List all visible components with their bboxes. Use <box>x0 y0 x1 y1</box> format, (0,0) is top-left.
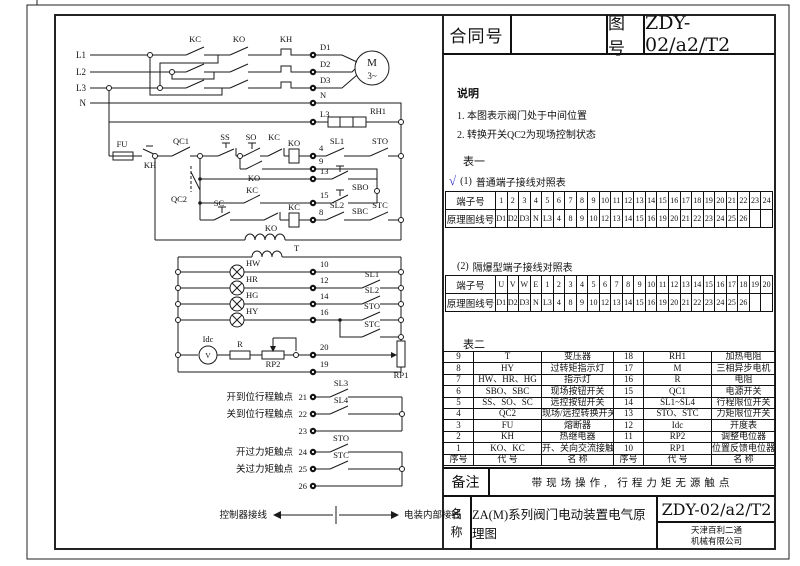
motor-phase-label: 3~ <box>367 71 377 81</box>
component-cell: 调整电位器 <box>712 431 776 442</box>
so-open-button <box>244 143 260 156</box>
terminal-cell: 15 <box>703 276 715 294</box>
sto-torque-contact <box>370 148 388 156</box>
term-20-label: 20 <box>320 342 329 352</box>
wire-cell: 25 <box>726 210 738 228</box>
term-4-label: 4 <box>319 143 324 153</box>
component-cell: QC2 <box>474 408 542 419</box>
terminal-cell: 23 <box>749 192 761 210</box>
row-header: 原理图线号 <box>446 210 496 228</box>
terminal-cell: 3 <box>565 276 577 294</box>
ss-stop-button <box>218 143 236 156</box>
component-row: 2KH热继电器11RP2调整电位器 <box>444 431 776 442</box>
wire-cell: 25 <box>726 294 738 312</box>
kc-interlock-contact <box>268 148 284 156</box>
wire-cell: 13 <box>611 294 623 312</box>
component-cell: 序号 <box>614 454 644 465</box>
caption-open-torque: 开过力矩触点 <box>236 446 294 458</box>
wire-cell: 26 <box>738 210 750 228</box>
drawing-page: L1 L2 L3 N KC KO KH D1 D2 D3 N L3 RH1 M … <box>0 0 800 566</box>
component-cell: 10 <box>614 443 644 454</box>
wire-cell: 16 <box>645 294 657 312</box>
wire-cell: 12 <box>599 210 611 228</box>
component-cell: 8 <box>444 363 474 374</box>
component-cell: 9 <box>444 352 474 363</box>
term-22-label: 22 <box>299 409 308 419</box>
terminal-cell: 24 <box>761 192 773 210</box>
component-row: 序号代 号名 称序号代 号名 称 <box>444 454 776 465</box>
kc-coil <box>289 213 299 227</box>
component-cell: SS、SO、SC <box>474 397 542 408</box>
wire-cell: 13 <box>611 210 623 228</box>
term-19-label: 19 <box>320 359 329 369</box>
fu-label: FU <box>117 139 128 149</box>
terminal-cell: 8 <box>622 276 634 294</box>
wire-cell: 16 <box>645 210 657 228</box>
term-25-label: 25 <box>299 464 308 474</box>
arrowheads <box>270 346 397 358</box>
term-12-label: 12 <box>320 275 329 285</box>
component-row: 6SBO、SBC现场按钮开关15QC1电源开关 <box>444 386 776 397</box>
sl4-label: SL4 <box>334 395 349 405</box>
component-cell: 序号 <box>444 454 474 465</box>
terminal-cell: 5 <box>542 192 554 210</box>
component-cell: HW、HR、HG <box>474 374 542 385</box>
sto-contact-label: STO <box>333 433 349 443</box>
wire-cell: 9 <box>576 294 588 312</box>
terminal-cell: 11 <box>657 276 669 294</box>
term-l3-label: L3 <box>320 109 329 119</box>
wire-cell: 21 <box>680 210 692 228</box>
sto-lamp-label: STO <box>364 301 380 311</box>
qc2-selector <box>191 156 200 220</box>
component-cell: 代 号 <box>474 454 542 465</box>
terminal-dots <box>310 52 316 489</box>
term-24-label: 24 <box>299 447 308 457</box>
resistor-r-label: R <box>237 339 243 349</box>
lamp-hw-label: HW <box>246 258 260 268</box>
sl1-limit-contact <box>326 148 344 156</box>
terminal-cell: 17 <box>680 192 692 210</box>
potentiometer-rp1 <box>397 341 405 367</box>
term-d1-label: D1 <box>320 42 330 52</box>
sto-label: STO <box>372 136 388 146</box>
kc-contacts <box>186 47 204 88</box>
sub2-title: 隔爆型端子接线对照表 <box>473 259 573 274</box>
dry-contact-group <box>316 389 402 486</box>
ko-coil-label: KO <box>288 138 300 148</box>
kc-coil-label: KC <box>288 202 300 212</box>
component-cell: 变压器 <box>542 352 614 363</box>
component-cell: RP2 <box>644 431 712 442</box>
ko-contactor-label: KO <box>233 34 245 44</box>
drawing-name: ZA(M)系列阀门电动装置电气原理图 <box>472 497 658 549</box>
stc-lamp-label: STC <box>364 319 380 329</box>
table1-sub1: √ (1) 普通端子接线对照表 <box>449 173 566 189</box>
component-cell: 远控按钮开关 <box>542 397 614 408</box>
row-header: 端子号 <box>446 192 496 210</box>
title-panel: 合同号 图号 ZDY-02/a2/T2 说明 1. 本图表示阀门处于中间位置 2… <box>443 15 775 549</box>
contract-no-label: 合同号 <box>443 15 512 53</box>
kc-hold-label: KC <box>246 185 258 195</box>
phase-n-label: N <box>80 98 87 108</box>
component-cell: 16 <box>614 374 644 385</box>
component-cell: 名 称 <box>542 454 614 465</box>
wire-number-row: 原理图线号 D1D2D3NL34891012131415161920212223… <box>446 210 773 228</box>
sub2-index: (2) <box>457 261 469 272</box>
kc-contactor-label: KC <box>189 34 201 44</box>
kc-interlock-label: KC <box>268 132 280 142</box>
terminal-cell: 6 <box>553 192 565 210</box>
wire-cell: 4 <box>553 294 565 312</box>
phase-l2-label: L2 <box>76 67 86 77</box>
name-block: 名称 ZA(M)系列阀门电动装置电气原理图 ZDY-02/a2/T2 天津百利二… <box>443 497 775 549</box>
terminal-cell: 10 <box>645 276 657 294</box>
close-command-row <box>200 207 401 220</box>
component-cell: RH1 <box>644 352 712 363</box>
phase-l1-label: L1 <box>76 50 86 60</box>
terminal-cell: 16 <box>668 192 680 210</box>
wire-cell: 20 <box>668 210 680 228</box>
wire-cell <box>749 210 761 228</box>
component-cell: R <box>644 374 712 385</box>
term-n-label: N <box>320 90 326 100</box>
wire-cell: 22 <box>692 210 704 228</box>
schematic-labels: L1 L2 L3 N KC KO KH D1 D2 D3 N L3 RH1 M … <box>76 34 462 521</box>
drawing-id-cell: ZDY-02/a2/T2 天津百利二通 机械有限公司 <box>658 497 775 549</box>
component-cell: 过转矩指示灯 <box>542 363 614 374</box>
component-cell: 行程限位开关 <box>712 397 776 408</box>
component-cell: 热继电器 <box>542 431 614 442</box>
lamp-hr <box>230 281 244 295</box>
wire-cell: D3 <box>519 210 531 228</box>
term-d3-label: D3 <box>320 75 330 85</box>
terminal-cell: 4 <box>576 276 588 294</box>
terminal-cell: 6 <box>599 276 611 294</box>
terminal-cell: 3 <box>519 192 531 210</box>
component-cell: 位置反馈电位器 <box>712 443 776 454</box>
qc1-switch <box>172 147 190 156</box>
sbc-label: SBC <box>352 206 368 216</box>
terminal-cell: V <box>507 276 519 294</box>
sub1-title: 普通端子接线对照表 <box>476 174 566 189</box>
note-item-2: 2. 转换开关QC2为现场控制状态 <box>457 127 757 146</box>
wire-cell: N <box>530 294 542 312</box>
lamp-hy <box>230 313 244 327</box>
wire-cell: 23 <box>703 210 715 228</box>
component-cell: STO、STC <box>644 408 712 419</box>
wire-cell: 14 <box>622 210 634 228</box>
wire-cell: 26 <box>738 294 750 312</box>
wire-cell: 8 <box>565 294 577 312</box>
terminal-cell: 4 <box>530 192 542 210</box>
terminal-cell: 12 <box>622 192 634 210</box>
open-hold-row <box>240 156 377 179</box>
wire-cell: D3 <box>519 294 531 312</box>
meter-v-glyph: V <box>205 351 211 360</box>
table1-title: 表一 <box>463 153 485 169</box>
terminal-cell: 1 <box>496 192 508 210</box>
term-8-label: 8 <box>319 207 323 217</box>
terminal-number-row: 端子号 UVWE1234567891011121314151617181920 <box>446 276 773 294</box>
transformer-label: T <box>294 243 300 253</box>
wire-cell: D2 <box>507 210 519 228</box>
wire-cell: 10 <box>588 210 600 228</box>
wiring-boundary <box>274 506 398 524</box>
wire-cell: 4 <box>553 210 565 228</box>
ko-interlock-label: KO <box>265 223 277 233</box>
potentiometer-rp2 <box>262 351 284 359</box>
component-cell: 指示灯 <box>542 374 614 385</box>
component-cell: SL1~SL4 <box>644 397 712 408</box>
component-row: 3FU熔断器12Idc开度表 <box>444 420 776 431</box>
component-cell: 现场按钮开关 <box>542 386 614 397</box>
terminal-cell: 21 <box>726 192 738 210</box>
wire-cell: 19 <box>657 210 669 228</box>
kh-thermal-elements <box>278 49 294 88</box>
term-9-label: 9 <box>319 156 323 166</box>
name-label: 名称 <box>443 497 472 549</box>
component-cell: 电阻 <box>712 374 776 385</box>
kh-relay-label: KH <box>280 34 292 44</box>
wire-cell <box>761 294 773 312</box>
terminal-cell: 20 <box>715 192 727 210</box>
terminal-cell: 19 <box>749 276 761 294</box>
terminal-cell: 13 <box>634 192 646 210</box>
table1-sub2: (2) 隔爆型端子接线对照表 <box>457 259 573 274</box>
component-cell: 电源开关 <box>712 386 776 397</box>
terminal-cell: 8 <box>576 192 588 210</box>
sl2-lamp-label: SL2 <box>365 285 379 295</box>
component-cell: 加热电阻 <box>712 352 776 363</box>
wire-cell: 19 <box>657 294 669 312</box>
component-cell: 11 <box>614 431 644 442</box>
component-cell: 14 <box>614 397 644 408</box>
component-cell: Idc <box>644 420 712 431</box>
phase-l3-label: L3 <box>76 83 86 93</box>
terminal-cell: 7 <box>611 276 623 294</box>
wire-cell: 21 <box>680 294 692 312</box>
terminal-number-row: 端子号 123456789101112131415161718192021222… <box>446 192 773 210</box>
component-cell: 熔断器 <box>542 420 614 431</box>
terminal-cell: 7 <box>565 192 577 210</box>
header-row: 合同号 图号 ZDY-02/a2/T2 <box>443 15 775 55</box>
notes-section: 说明 1. 本图表示阀门处于中间位置 2. 转换开关QC2为现场控制状态 <box>457 85 757 145</box>
lamp-hw <box>230 265 244 279</box>
terminal-cell: 9 <box>634 276 646 294</box>
table2-title: 表二 <box>463 336 485 352</box>
wire-cell: 14 <box>622 294 634 312</box>
rp2-label: RP2 <box>266 359 281 369</box>
terminal-cell: 2 <box>553 276 565 294</box>
term-16-label: 16 <box>320 307 329 317</box>
caption-close-torque: 关过力矩触点 <box>236 463 294 475</box>
notes-title: 说明 <box>457 85 757 101</box>
terminal-cell: 22 <box>738 192 750 210</box>
component-cell: 开、关向交流接触器 <box>542 443 614 454</box>
terminal-cell: 10 <box>599 192 611 210</box>
sl1-label: SL1 <box>330 136 344 146</box>
wire-cell <box>761 210 773 228</box>
component-cell: 名 称 <box>712 454 776 465</box>
terminal-cell: E <box>530 276 542 294</box>
idc-label: Idc <box>203 334 214 344</box>
ss-label: SS <box>220 132 230 142</box>
wire-cell: 15 <box>634 294 646 312</box>
component-row: 8HY过转矩指示灯17M三相异步电机 <box>444 363 776 374</box>
ko-contacts <box>230 47 248 88</box>
stc-contact-label: STC <box>333 450 349 460</box>
qc1-label: QC1 <box>173 136 189 146</box>
component-cell: 18 <box>614 352 644 363</box>
rp2-wiper <box>273 338 296 351</box>
qc2-label: QC2 <box>171 194 187 204</box>
component-cell: M <box>644 363 712 374</box>
lamp-hg-label: HG <box>246 290 258 300</box>
row-header: 原理图线号 <box>446 294 496 312</box>
component-cell: FU <box>474 420 542 431</box>
terminal-cell: 1 <box>542 276 554 294</box>
terminal-cell: W <box>519 276 531 294</box>
term-26-label: 26 <box>299 481 308 491</box>
drawing-no-value: ZDY-02/a2/T2 <box>645 15 775 53</box>
wire-cell: 24 <box>715 210 727 228</box>
wire-cell <box>749 294 761 312</box>
component-cell: KH <box>474 431 542 442</box>
component-cell: 2 <box>444 431 474 442</box>
component-row: 7HW、HR、HG指示灯16R电阻 <box>444 374 776 385</box>
sub1-index: (1) <box>460 176 472 187</box>
wire-cell: 22 <box>692 294 704 312</box>
wire-cell: D2 <box>507 294 519 312</box>
component-cell: KO、KC <box>474 443 542 454</box>
ko-hold-label: KO <box>248 173 260 183</box>
rh1-heater-resistor <box>328 117 366 127</box>
explosion-proof-terminal-table: 端子号 UVWE1234567891011121314151617181920 … <box>445 275 773 312</box>
terminal-cell: 19 <box>703 192 715 210</box>
terminal-cell: 20 <box>761 276 773 294</box>
caption-open-travel: 开到位行程触点 <box>226 391 293 403</box>
ordinary-terminal-table: 端子号 123456789101112131415161718192021222… <box>445 191 773 228</box>
component-cell: 17 <box>614 363 644 374</box>
remark-text: 带现场操作, 行程力矩无源触点 <box>490 469 775 495</box>
terminal-cell: 18 <box>692 192 704 210</box>
wire-cell: 12 <box>599 294 611 312</box>
terminal-cell: 13 <box>680 276 692 294</box>
term-15-label: 15 <box>320 190 329 200</box>
component-row: 5SS、SO、SC远控按钮开关14SL1~SL4行程限位开关 <box>444 397 776 408</box>
lamp-hr-label: HR <box>246 274 258 284</box>
component-cell: 4 <box>444 408 474 419</box>
component-cell: 5 <box>444 397 474 408</box>
fuse-fu <box>113 152 133 160</box>
term-23-label: 23 <box>299 426 308 436</box>
component-cell: 6 <box>444 386 474 397</box>
remark-row: 备注 带现场操作, 行程力矩无源触点 <box>443 467 775 497</box>
wire-cell: L3 <box>542 294 554 312</box>
sbo-label: SBO <box>352 182 369 192</box>
rh1-label: RH1 <box>370 106 386 116</box>
wire-cell: 20 <box>668 294 680 312</box>
lamp-hy-label: HY <box>246 306 258 316</box>
term-14-label: 14 <box>320 291 329 301</box>
component-cell: 力矩限位开关 <box>712 408 776 419</box>
wire-cell: 23 <box>703 294 715 312</box>
component-cell: SBO、SBC <box>474 386 542 397</box>
component-cell: HY <box>474 363 542 374</box>
motor-label: M <box>367 57 377 69</box>
stc-label: STC <box>372 200 388 210</box>
component-row: 4QC2现场/远控转换开关13STO、STC力矩限位开关 <box>444 408 776 419</box>
terminal-cell: U <box>496 276 508 294</box>
term-10-label: 10 <box>320 259 329 269</box>
wire-cell: D1 <box>496 294 508 312</box>
resistor-r <box>230 351 250 359</box>
note-item-1: 1. 本图表示阀门处于中间位置 <box>457 108 757 127</box>
check-mark-icon: √ <box>449 173 456 189</box>
component-cell: 7 <box>444 374 474 385</box>
component-cell: QC1 <box>644 386 712 397</box>
terminal-cell: 15 <box>657 192 669 210</box>
terminal-cell: 2 <box>507 192 519 210</box>
company-line-1: 天津百利二通 <box>691 525 742 536</box>
terminal-cell: 17 <box>726 276 738 294</box>
component-cell: 三相异步电机 <box>712 363 776 374</box>
company-name: 天津百利二通 机械有限公司 <box>658 523 775 549</box>
controller-wiring-label: 控制器接线 <box>219 509 267 521</box>
remark-label: 备注 <box>443 469 490 495</box>
component-cell: 开度表 <box>712 420 776 431</box>
sl1-lamp-label: SL1 <box>365 269 379 279</box>
wire-cell: 15 <box>634 210 646 228</box>
sc-label: SC <box>214 198 225 208</box>
terminal-cell: 14 <box>645 192 657 210</box>
component-cell: 12 <box>614 420 644 431</box>
term-d2-label: D2 <box>320 59 330 69</box>
wire-cell: L3 <box>542 210 554 228</box>
component-cell: T <box>474 352 542 363</box>
terminal-cell: 12 <box>668 276 680 294</box>
terminal-cell: 11 <box>611 192 623 210</box>
wire-cell: N <box>530 210 542 228</box>
component-cell: 3 <box>444 420 474 431</box>
company-line-2: 机械有限公司 <box>691 536 742 547</box>
lamp-hg <box>230 297 244 311</box>
sl2-label: SL2 <box>330 200 344 210</box>
rp1-label: RP1 <box>394 370 409 380</box>
component-cell: RP1 <box>644 443 712 454</box>
row-header: 端子号 <box>446 276 496 294</box>
terminal-cell: 18 <box>738 276 750 294</box>
term-21-label: 21 <box>299 392 308 402</box>
wire-cell: D1 <box>496 210 508 228</box>
terminal-cell: 16 <box>715 276 727 294</box>
component-cell: 代 号 <box>644 454 712 465</box>
terminal-cell: 14 <box>692 276 704 294</box>
component-cell: 15 <box>614 386 644 397</box>
ko-coil <box>289 149 299 163</box>
kh-aux-label: KH <box>144 160 156 170</box>
wire-cell: 24 <box>715 294 727 312</box>
caption-close-travel: 关到位行程触点 <box>226 408 293 420</box>
drawing-no-label: 图号 <box>608 15 645 53</box>
sl3-label: SL3 <box>334 378 348 388</box>
local-open-row <box>200 166 377 179</box>
component-row: 9T变压器18RH1加热电阻 <box>444 352 776 363</box>
so-label: SO <box>246 132 257 142</box>
terminal-cell: 9 <box>588 192 600 210</box>
component-row: 1KO、KC开、关向交流接触器10RP1位置反馈电位器 <box>444 443 776 454</box>
